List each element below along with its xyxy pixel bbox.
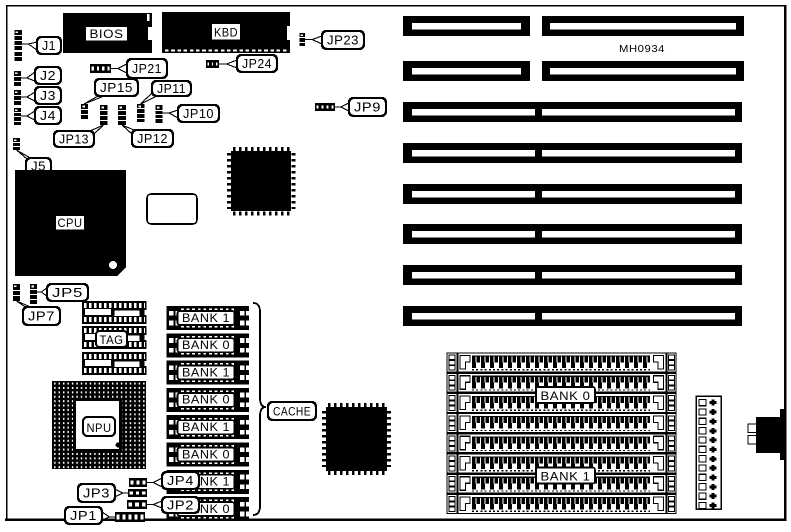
svg-text:CPU: CPU (58, 216, 83, 230)
svg-text:BANK 0: BANK 0 (182, 393, 230, 407)
svg-text:TAG: TAG (100, 333, 124, 347)
svg-text:BANK 0: BANK 0 (541, 391, 591, 403)
svg-text:BANK 1: BANK 1 (182, 420, 230, 434)
svg-text:JP23: JP23 (327, 33, 359, 48)
svg-text:J2: J2 (40, 68, 56, 83)
svg-text:JP24: JP24 (242, 56, 272, 71)
svg-text:KBD: KBD (214, 26, 238, 40)
svg-text:JP1: JP1 (70, 508, 97, 523)
svg-text:JP2: JP2 (167, 498, 194, 513)
svg-text:JP11: JP11 (157, 81, 186, 96)
svg-text:BANK 0: BANK 0 (182, 338, 230, 352)
svg-text:JP5: JP5 (52, 285, 83, 300)
svg-text:BANK 1: BANK 1 (182, 311, 230, 325)
svg-text:J4: J4 (40, 108, 56, 123)
svg-text:JP4: JP4 (167, 473, 194, 488)
svg-text:JP12: JP12 (137, 131, 168, 146)
svg-text:JP7: JP7 (28, 309, 55, 324)
svg-text:JP9: JP9 (354, 100, 381, 115)
svg-text:J1: J1 (42, 38, 56, 53)
svg-text:BIOS: BIOS (90, 27, 124, 41)
svg-text:JP3: JP3 (83, 486, 110, 501)
svg-text:JP21: JP21 (132, 61, 162, 76)
svg-text:BANK 0: BANK 0 (182, 447, 230, 461)
svg-text:CACHE: CACHE (273, 405, 311, 419)
svg-text:BANK 1: BANK 1 (182, 365, 230, 379)
svg-text:JP15: JP15 (100, 80, 133, 95)
svg-text:JP13: JP13 (59, 132, 89, 147)
svg-text:MH0934: MH0934 (619, 44, 665, 55)
svg-text:BANK 1: BANK 1 (541, 472, 591, 484)
svg-text:NPU: NPU (87, 421, 112, 435)
svg-text:JP10: JP10 (183, 106, 214, 121)
svg-text:J3: J3 (40, 88, 56, 103)
